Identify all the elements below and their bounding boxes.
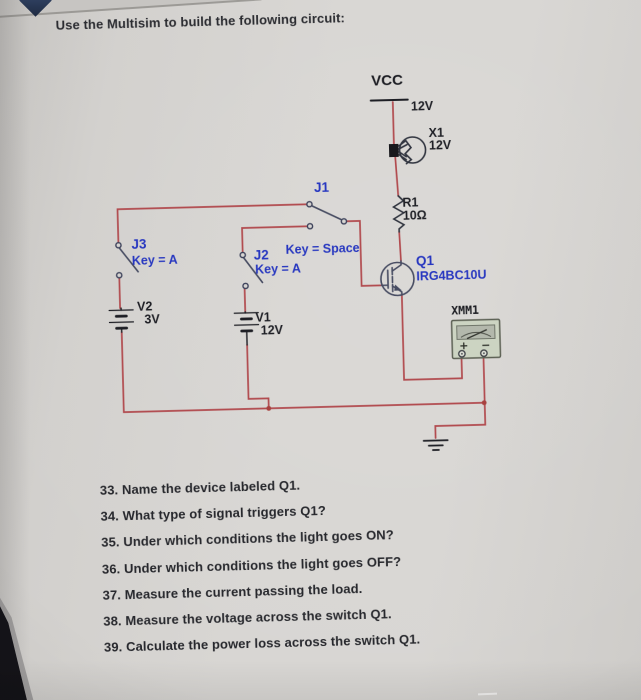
wire-r1-to-q1-collector xyxy=(399,232,401,261)
lamp-contact-block xyxy=(389,144,399,157)
switch-j2-key-label: Key = A xyxy=(255,261,301,276)
switch-j1-pole-contact xyxy=(341,219,346,224)
lamp-x1: X1 12V xyxy=(388,125,452,164)
battery-v2-value-label: 3V xyxy=(144,312,160,326)
switch-j1-ref-label: J1 xyxy=(314,180,330,195)
photo-background: Use the Multisim to build the following … xyxy=(0,0,641,700)
switch-j1-throw2-contact xyxy=(307,224,312,229)
questions-list: 33. Name the device labeled Q1. 34. What… xyxy=(100,472,525,666)
junction-dot-v1-bus xyxy=(266,406,271,411)
wire-j2-to-v1 xyxy=(245,289,246,312)
switch-j3-bottom-contact xyxy=(117,273,122,278)
wire-v1-to-bus xyxy=(247,344,269,409)
igbt-q1: Q1 IRG4BC10U xyxy=(380,252,487,296)
lamp-value-label: 12V xyxy=(429,138,452,153)
switch-j1-throw1-contact xyxy=(307,202,312,207)
wire-v2-to-ground-bus xyxy=(122,323,484,412)
wire-lamp-to-r1 xyxy=(395,157,398,196)
vcc-power-symbol: VCC 12V xyxy=(370,71,434,115)
switch-j3-ref-label: J3 xyxy=(131,236,147,251)
vcc-net-label: VCC xyxy=(371,72,403,90)
junction-dot-bus-ground xyxy=(482,400,487,405)
resistor-value-label: 10Ω xyxy=(403,208,427,223)
battery-v1-leads xyxy=(245,312,247,345)
switch-j1: J1 Key = Space xyxy=(284,179,360,257)
bottom-shade xyxy=(0,660,641,700)
battery-v1: V1 12V xyxy=(234,310,284,345)
wire-xmm1-minus-to-ground xyxy=(434,358,486,438)
circuit-schematic: VCC 12V X1 12V R1 10Ω xyxy=(0,0,641,478)
multimeter-ref-label: XMM1 xyxy=(451,303,479,318)
switch-j2-ref-label: J2 xyxy=(254,247,269,262)
switch-j2-top-contact xyxy=(240,252,245,257)
battery-v2: V2 3V xyxy=(109,299,161,332)
multimeter-xmm1: XMM1 + − xyxy=(451,302,500,358)
switch-j2-bottom-contact xyxy=(243,283,248,288)
lamp-bulb xyxy=(399,137,426,164)
switch-j3-top-contact xyxy=(116,243,121,248)
igbt-ref-label: Q1 xyxy=(416,253,435,268)
battery-v2-leads xyxy=(121,308,122,332)
switch-j3-key-label: Key = A xyxy=(132,253,178,268)
vcc-value-label: 12V xyxy=(411,99,434,114)
wire-vcc-to-lamp xyxy=(393,102,394,144)
igbt-emitter-arrow xyxy=(394,284,402,290)
ground-lines xyxy=(424,440,448,450)
resistor-r1: R1 10Ω xyxy=(393,195,427,232)
ground-symbol xyxy=(424,440,448,450)
worksheet-content: Use the Multisim to build the following … xyxy=(0,0,641,700)
battery-v1-value-label: 12V xyxy=(261,323,284,338)
switch-j1-arm xyxy=(312,205,340,220)
igbt-value-label: IRG4BC10U xyxy=(416,268,487,284)
wire-j3-to-v2 xyxy=(119,278,120,308)
switch-j3: J3 Key = A xyxy=(116,236,178,278)
switch-j1-key-label: Key = Space xyxy=(285,241,359,257)
vcc-bar xyxy=(371,100,408,101)
